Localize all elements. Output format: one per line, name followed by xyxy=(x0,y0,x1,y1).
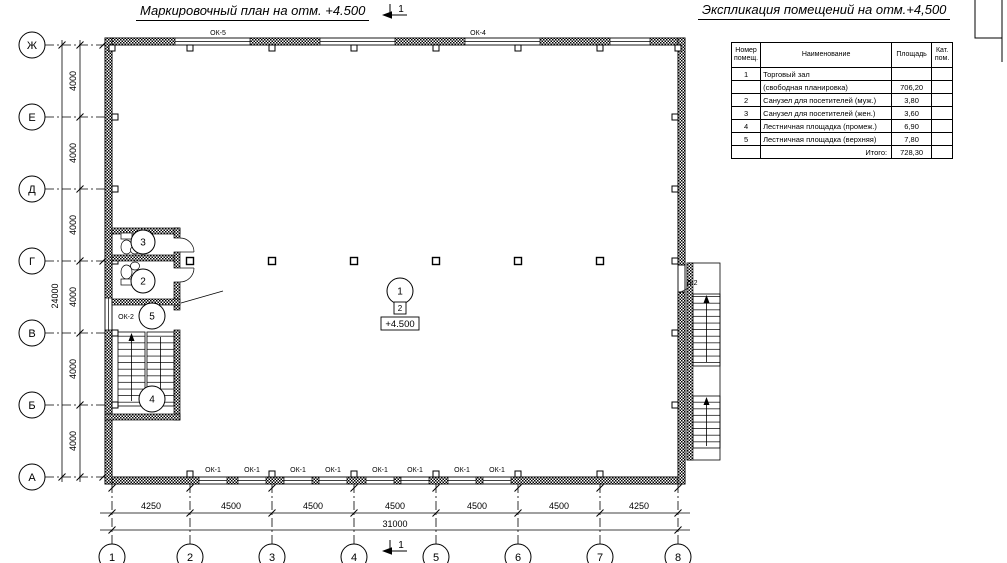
axis-row-label: Г xyxy=(29,256,35,268)
floor-type-marker: 2 xyxy=(398,304,403,313)
dim-vertical: 4000 xyxy=(68,71,78,91)
dim-vertical: 4000 xyxy=(68,143,78,163)
dim-horizontal: 4500 xyxy=(303,501,323,511)
dim-vertical: 4000 xyxy=(68,431,78,451)
axis-row-label: Б xyxy=(28,400,35,412)
window-label: ОК-1 xyxy=(290,467,306,474)
cell-area xyxy=(892,68,932,81)
col-header-area: Площадь xyxy=(892,43,932,68)
axis-col-label: 8 xyxy=(675,552,681,563)
dim-vertical-total: 24000 xyxy=(50,283,60,308)
window-label: ОК-2 xyxy=(118,314,134,321)
columns xyxy=(109,45,681,477)
cell-name: Лестничная площадка (верхняя) xyxy=(761,133,892,146)
room-schedule-table: Номер помещ. Наименование Площадь Кат. п… xyxy=(731,42,953,159)
cell-area: 3,60 xyxy=(892,107,932,120)
axis-row-label: Е xyxy=(28,112,35,124)
cell-area: 7,80 xyxy=(892,133,932,146)
table-row: (свободная планировка) 706,20 xyxy=(732,81,953,94)
cell-cat xyxy=(932,81,953,94)
door-label: Д-2 xyxy=(687,280,698,287)
dim-horizontal: 4500 xyxy=(385,501,405,511)
dim-horizontal: 4250 xyxy=(629,501,649,511)
cell-number: 2 xyxy=(732,94,761,107)
cell-total-label: Итого: xyxy=(761,146,892,159)
room-number: 5 xyxy=(149,312,155,323)
opening-labels: ОК-5 ОК-4 ОК-1 ОК-1 ОК-1 ОК-1 ОК-1 ОК-1 … xyxy=(118,30,697,474)
col-header-name: Наименование xyxy=(761,43,892,68)
window-label: ОК-1 xyxy=(372,467,388,474)
axis-row-label: А xyxy=(28,472,36,484)
dim-horizontal: 4500 xyxy=(467,501,487,511)
plan-title: Маркировочный план на отм. +4.500 xyxy=(136,3,369,21)
window-label: ОК-5 xyxy=(210,30,226,37)
dim-vertical: 4000 xyxy=(68,359,78,379)
dim-vertical: 4000 xyxy=(68,287,78,307)
cell-cat xyxy=(932,146,953,159)
col-header-cat: Кат. пом. xyxy=(932,43,953,68)
cell-number xyxy=(732,146,761,159)
dim-vertical: 4000 xyxy=(68,215,78,235)
table-header-row: Номер помещ. Наименование Площадь Кат. п… xyxy=(732,43,953,68)
axis-col-label: 5 xyxy=(433,552,439,563)
cell-area: 706,20 xyxy=(892,81,932,94)
room-number: 1 xyxy=(397,287,403,298)
axis-col-label: 3 xyxy=(269,552,275,563)
markers: 2 +4.500 xyxy=(381,302,419,330)
window-label: ОК-1 xyxy=(325,467,341,474)
schedule-title: Экспликация помещений на отм.+4,500 xyxy=(698,2,950,20)
axis-row-label: В xyxy=(28,328,35,340)
table-row: 3 Санузел для посетителей (жен.) 3,60 xyxy=(732,107,953,120)
window-label: ОК-1 xyxy=(454,467,470,474)
axis-col-label: 1 xyxy=(109,552,115,563)
cell-number: 4 xyxy=(732,120,761,133)
cell-number: 1 xyxy=(732,68,761,81)
cell-name: Санузел для посетителей (жен.) xyxy=(761,107,892,120)
cell-name: Санузел для посетителей (муж.) xyxy=(761,94,892,107)
col-header-number: Номер помещ. xyxy=(732,43,761,68)
axis-row-label: Ж xyxy=(27,40,37,52)
axis-col-label: 7 xyxy=(597,552,603,563)
axis-col-label: 4 xyxy=(351,552,357,563)
table-row: 2 Санузел для посетителей (муж.) 3,80 xyxy=(732,94,953,107)
cell-name: Торговый зал xyxy=(761,68,892,81)
window-label: ОК-1 xyxy=(489,467,505,474)
drawing-sheet: Ж Е Д Г В Б А 1 2 3 4 5 6 7 8 xyxy=(0,0,1007,563)
dim-horizontal: 4250 xyxy=(141,501,161,511)
axis-col-label: 2 xyxy=(187,552,193,563)
dim-horizontal: 4500 xyxy=(549,501,569,511)
cell-total-area: 728,30 xyxy=(892,146,932,159)
table-row: 1 Торговый зал xyxy=(732,68,953,81)
cell-area: 3,80 xyxy=(892,94,932,107)
window-label: ОК-4 xyxy=(470,30,486,37)
section-number: 1 xyxy=(398,540,404,551)
cell-name: Лестничная площадка (промеж.) xyxy=(761,120,892,133)
room-number: 2 xyxy=(140,277,146,288)
cell-area: 6,90 xyxy=(892,120,932,133)
room-number: 3 xyxy=(140,238,146,249)
axis-col-label: 6 xyxy=(515,552,521,563)
cell-number xyxy=(732,81,761,94)
window-label: ОК-1 xyxy=(244,467,260,474)
cell-number: 3 xyxy=(732,107,761,120)
cell-name: (свободная планировка) xyxy=(761,81,892,94)
table-row: 5 Лестничная площадка (верхняя) 7,80 xyxy=(732,133,953,146)
elevation-marker: +4.500 xyxy=(385,319,414,330)
cell-cat xyxy=(932,107,953,120)
frame-notch xyxy=(975,0,1002,62)
dim-horizontal: 4500 xyxy=(221,501,241,511)
dim-horizontal-total: 31000 xyxy=(382,519,407,529)
cell-cat xyxy=(932,133,953,146)
room-number: 4 xyxy=(149,395,155,406)
table-row: 4 Лестничная площадка (промеж.) 6,90 xyxy=(732,120,953,133)
table-row: Итого: 728,30 xyxy=(732,146,953,159)
section-number: 1 xyxy=(398,4,404,15)
axis-row-label: Д xyxy=(28,184,36,196)
cell-cat xyxy=(932,120,953,133)
cell-cat xyxy=(932,94,953,107)
cell-number: 5 xyxy=(732,133,761,146)
window-label: ОК-1 xyxy=(205,467,221,474)
window-label: ОК-1 xyxy=(407,467,423,474)
cell-cat xyxy=(932,68,953,81)
